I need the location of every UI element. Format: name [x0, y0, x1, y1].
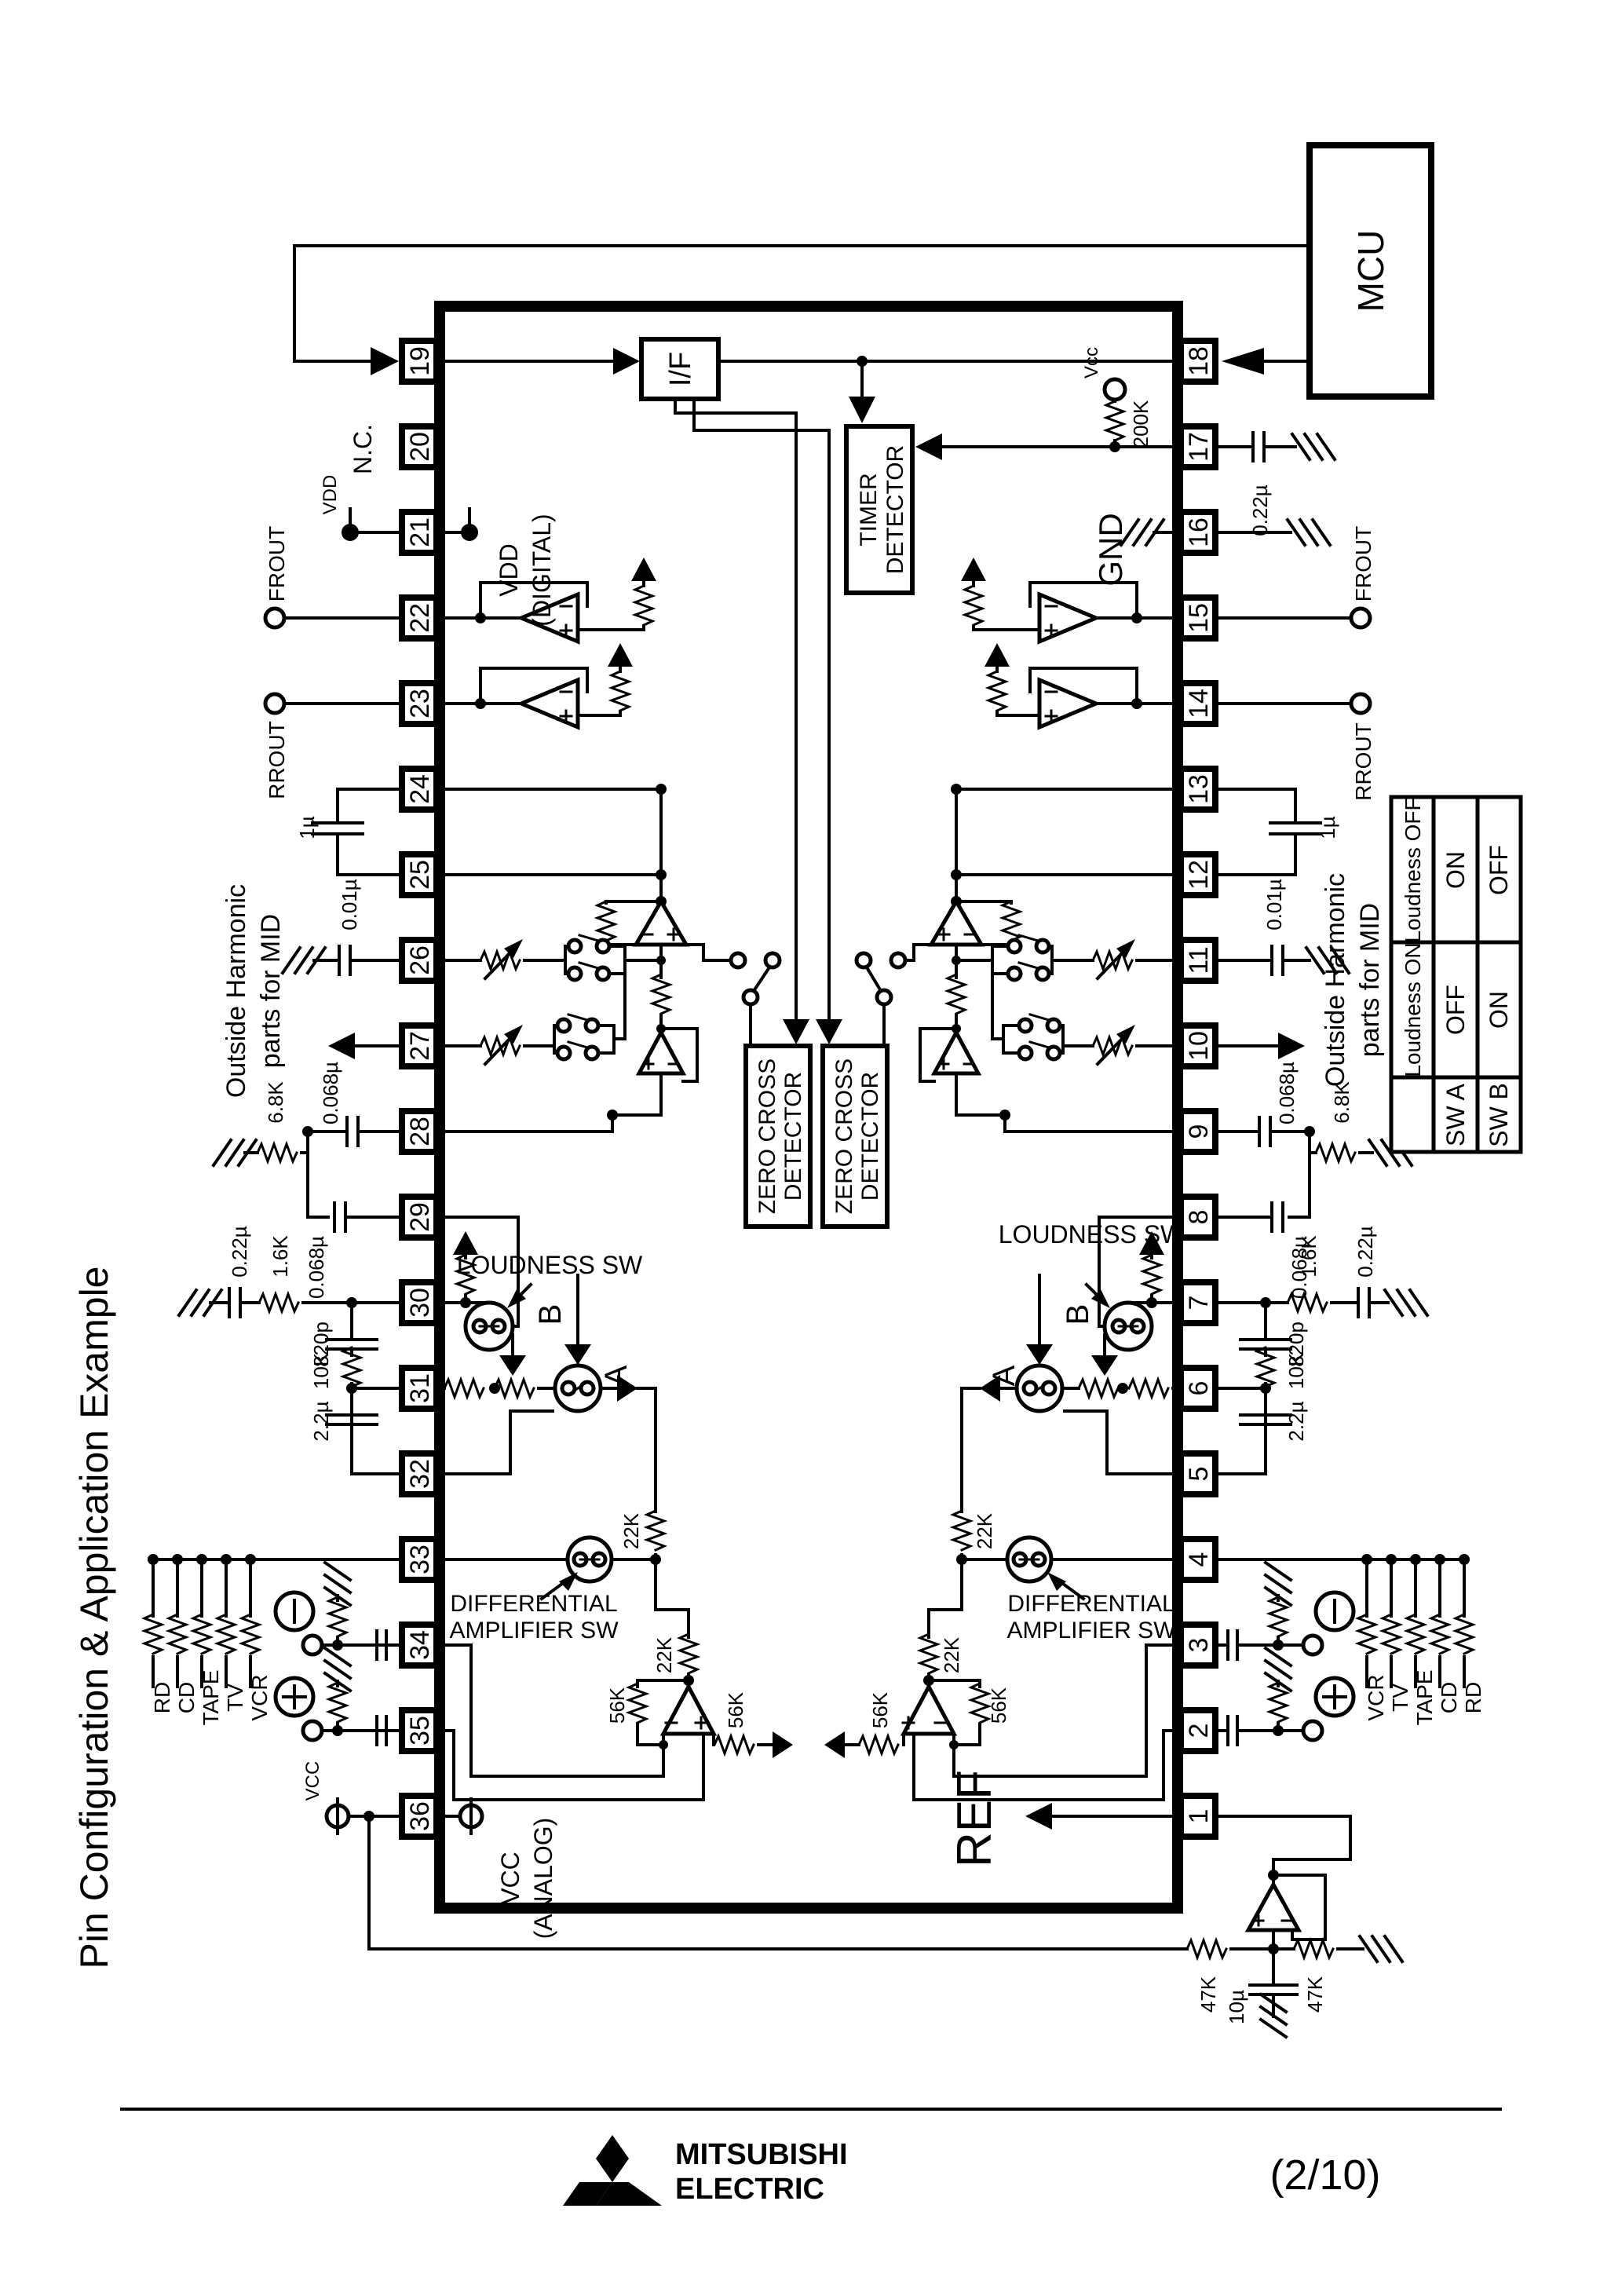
pin-15-number: 15: [1184, 603, 1214, 633]
pin-24: 24: [399, 766, 440, 813]
pin-26-number: 26: [405, 945, 435, 975]
loudness-b-label-right: B: [1061, 1304, 1095, 1325]
pin-10: 10: [1178, 1022, 1218, 1069]
r22k-in-right: 22K: [940, 1636, 963, 1673]
source-resistors-left: RD CD TAPE TV VCR: [144, 1559, 272, 1726]
c068a-left-label: 0.068µ: [319, 1062, 342, 1124]
table-swb-on-state: ON: [1485, 991, 1513, 1029]
pin-33: 33: [399, 1536, 440, 1583]
pin-30: 30: [399, 1279, 440, 1326]
pin-23: 23: [399, 680, 440, 727]
pin-12: 12: [1178, 851, 1218, 898]
mitsubishi-logo-icon: [563, 2135, 662, 2206]
page-title: Pin Configuration & Application Example: [72, 1267, 116, 1969]
pin-7-number: 7: [1184, 1296, 1214, 1311]
diff-label-left-2: AMPLIFIER SW: [449, 1618, 619, 1643]
diff-amp-left: 22K 22K 56K 56K DIFFERENTIAL AMPLIFIER S…: [440, 1511, 793, 1800]
r22k-series-left: 22K: [619, 1512, 643, 1549]
pin-27: 27: [399, 1022, 440, 1069]
pin-25: 25: [399, 851, 440, 898]
pin-28: 28: [399, 1108, 440, 1155]
brand-line-2: ELECTRIC: [675, 2173, 824, 2206]
pin-36-number: 36: [405, 1801, 435, 1831]
pin-4-number: 4: [1184, 1552, 1214, 1567]
r56k-out-right: 56K: [868, 1691, 892, 1728]
vcc-int-label-1: VCC: [496, 1852, 524, 1905]
timer-label-2: DETECTOR: [882, 445, 908, 574]
zcd2-label-1: ZERO CROSS: [831, 1058, 857, 1214]
left-channel-internals: B A LOUDNESS SW: [440, 558, 697, 1512]
loudness-sw-label-left: LOUDNESS SW: [457, 1251, 643, 1279]
if-label: I/F: [664, 352, 697, 386]
c1u-right-label: 1µ: [1316, 816, 1339, 839]
c10u-label: 10µ: [1225, 1990, 1248, 2024]
harmonic-left-2: parts for MID: [256, 914, 286, 1068]
src-tv: TV: [223, 1684, 247, 1712]
pin-19-number: 19: [405, 346, 435, 376]
pin-22-number: 22: [405, 603, 435, 633]
pin-20: 20: [399, 423, 440, 470]
vdd-int-label-2: (DIGITAL): [528, 514, 556, 626]
pin-17-number: 17: [1184, 432, 1214, 462]
zero-cross-detector-2: ZERO CROSS DETECTOR: [823, 1046, 887, 1227]
pin-35: 35: [399, 1707, 440, 1754]
brand-line-1: MITSUBISHI: [675, 2138, 848, 2171]
ref-wiring: REF: [948, 1770, 1178, 1867]
pin-15: 15: [1178, 594, 1218, 642]
pin-9-number: 9: [1184, 1124, 1214, 1139]
table-sw-a: SW A: [1441, 1083, 1470, 1146]
r47k-1-label: 47K: [1196, 1976, 1220, 2013]
rrout-right-label: RROUT: [1351, 722, 1375, 801]
pin-8: 8: [1178, 1194, 1218, 1241]
pin-11-number: 11: [1184, 946, 1214, 974]
datasheet-page: Pin Configuration & Application Example …: [0, 0, 1622, 2296]
pin-24-number: 24: [405, 774, 435, 804]
gnd-label: GND: [1092, 513, 1129, 586]
pin-17: 17: [1178, 423, 1218, 470]
left-externals: N.C. VDD VDD (DIGITAL) FROUT RROUT 1µ 0.…: [144, 424, 1187, 1949]
pin-36: 36: [399, 1793, 440, 1840]
src-cd: CD: [174, 1682, 199, 1713]
harmonic-right-1: Outside Harmonic: [1321, 873, 1350, 1087]
frout-left-label: FROUT: [265, 526, 289, 601]
c022-left-label: 0.22µ: [228, 1226, 251, 1278]
vdd-ext-label: VDD: [320, 475, 341, 515]
pin-25-number: 25: [405, 860, 435, 890]
c1u-left-label: 1µ: [295, 816, 319, 839]
pin-31: 31: [399, 1365, 440, 1412]
table-swb-off-state: OFF: [1485, 845, 1513, 895]
diff-label-right-1: DIFFERENTIAL: [1007, 1591, 1174, 1617]
pin-18-number: 18: [1184, 346, 1214, 376]
pin-19: 19: [399, 338, 440, 385]
pin-2: 2: [1178, 1707, 1218, 1754]
r47k-2-label: 47K: [1303, 1976, 1327, 2013]
table-sw-b: SW B: [1485, 1083, 1513, 1147]
pin-35-number: 35: [405, 1716, 435, 1746]
vcc-int-label-2: (ANALOG): [529, 1818, 557, 1940]
pin-1: 1: [1178, 1793, 1218, 1840]
mcu-block: MCU: [1310, 145, 1431, 397]
pin-28-number: 28: [405, 1117, 435, 1146]
table-loudness-on: Loudness ON: [1401, 942, 1425, 1077]
pins-left: 19 20 21 22 23 24 25 26 27 28 29 30 31 3…: [399, 338, 440, 1840]
r10k-right-label: 10K: [1284, 1352, 1308, 1389]
pin-20-number: 20: [405, 432, 435, 462]
frout-right-label: FROUT: [1351, 526, 1375, 601]
r16k-right-label: 1.6K: [1297, 1235, 1321, 1278]
pin-29-number: 29: [405, 1202, 435, 1232]
loudness-sw-label-right: LOUDNESS SW: [999, 1220, 1185, 1249]
src-tape-r: TAPE: [1412, 1669, 1437, 1725]
mcu-label: MCU: [1350, 230, 1391, 313]
src-rd: RD: [150, 1682, 174, 1713]
r56k-out-left: 56K: [724, 1691, 747, 1728]
table-loudness-off: Loudness OFF: [1401, 797, 1425, 942]
diff-label-left-1: DIFFERENTIAL: [450, 1591, 617, 1617]
diff-label-right-2: AMPLIFIER SW: [1006, 1618, 1176, 1643]
src-vcr-r: VCR: [1364, 1674, 1388, 1720]
pin-10-number: 10: [1184, 1031, 1214, 1061]
pin-29: 29: [399, 1194, 440, 1241]
r22k-series-right: 22K: [973, 1512, 996, 1549]
pin-31-number: 31: [405, 1373, 435, 1403]
zcd2-label-2: DETECTOR: [857, 1072, 883, 1201]
vcc-pullup-label: Vcc: [1081, 347, 1102, 378]
harmonic-left-1: Outside Harmonic: [221, 884, 251, 1098]
pin-21: 21: [399, 509, 440, 556]
timer-detector-wiring: Vcc 200K: [915, 347, 1178, 460]
schematic: Pin Configuration & Application Example …: [0, 0, 1622, 2296]
pin-34-number: 34: [405, 1630, 435, 1660]
ref-label: REF: [948, 1770, 1002, 1867]
pin-6: 6: [1178, 1365, 1218, 1412]
r68k-right-label: 6.8K: [1330, 1081, 1353, 1124]
zcd1-label-1: ZERO CROSS: [754, 1058, 780, 1214]
r56k-fb-left: 56K: [605, 1687, 629, 1724]
c22u-right-label: 2.2µ: [1284, 1401, 1308, 1441]
source-resistors-right: VCR TV TAPE CD RD: [1358, 1559, 1485, 1726]
pin-6-number: 6: [1184, 1381, 1214, 1396]
pin-16-number: 16: [1184, 517, 1214, 547]
pin-18: 18: [1178, 338, 1218, 385]
loudness-b-label-left: B: [533, 1304, 568, 1325]
diff-amp-right: 22K 22K 56K 56K DIFFERENTIAL AMPLIFIER S…: [824, 1511, 1178, 1800]
src-tv-r: TV: [1388, 1684, 1412, 1712]
footer: MITSUBISHI ELECTRIC (2/10): [122, 2109, 1500, 2206]
pin-12-number: 12: [1184, 860, 1214, 890]
r56k-fb-right: 56K: [987, 1687, 1010, 1724]
if-block: I/F: [641, 339, 718, 399]
zero-cross-wiring: [686, 945, 931, 1046]
r68k-left-label: 6.8K: [264, 1081, 287, 1124]
src-tape: TAPE: [199, 1669, 223, 1725]
r200k-label: 200K: [1129, 400, 1153, 448]
src-rd-r: RD: [1461, 1682, 1485, 1713]
timer-detector-block: TIMER DETECTOR: [846, 426, 912, 593]
pin-33-number: 33: [405, 1545, 435, 1574]
pin-5: 5: [1178, 1450, 1218, 1497]
src-vcr: VCR: [247, 1674, 272, 1720]
nc-label: N.C.: [349, 424, 377, 474]
pin-13-number: 13: [1184, 774, 1214, 804]
pin-4: 4: [1178, 1536, 1218, 1583]
rrout-left-label: RROUT: [265, 721, 289, 799]
pin-8-number: 8: [1184, 1210, 1214, 1225]
pin-11: 11: [1178, 937, 1218, 984]
pin-14: 14: [1178, 680, 1218, 727]
harmonic-right-2: parts for MID: [1355, 903, 1385, 1057]
c001-left-label: 0.01µ: [338, 879, 361, 930]
c22u-left-label: 2.2µ: [309, 1401, 333, 1441]
zero-cross-detector-1: ZERO CROSS DETECTOR: [746, 1046, 810, 1227]
right-channel-internals: B A LOUDNESS SW: [920, 558, 1185, 1512]
timer-label-1: TIMER: [856, 473, 882, 546]
pin-27-number: 27: [405, 1031, 435, 1061]
pins-right: 18 17 16 15 14 13 12 11 10 9 8 7 6 5 4 3…: [1178, 338, 1218, 1840]
c001-right-label: 0.01µ: [1262, 879, 1286, 930]
c068b-left-label: 0.068µ: [305, 1236, 328, 1299]
pin-1-number: 1: [1184, 1809, 1214, 1824]
loudness-table: Loudness OFF ON OFF Loudness ON OFF ON S…: [1391, 797, 1521, 1152]
vdd-int-label-1: VDD: [495, 543, 523, 597]
table-swa-on-state: OFF: [1441, 985, 1470, 1035]
pin-7: 7: [1178, 1279, 1218, 1326]
pin-13: 13: [1178, 766, 1218, 813]
src-cd-r: CD: [1437, 1682, 1461, 1713]
pin-26: 26: [399, 937, 440, 984]
pin-5-number: 5: [1184, 1467, 1214, 1482]
r16k-left-label: 1.6K: [269, 1235, 292, 1278]
c022-pin17-label: 0.22µ: [1248, 484, 1272, 536]
pin-32: 32: [399, 1450, 440, 1497]
pin-16: 16: [1178, 509, 1218, 556]
pin-21-number: 21: [405, 517, 435, 547]
vcc-ext-label: VCC: [302, 1761, 323, 1801]
pin-3-number: 3: [1184, 1638, 1214, 1653]
c068a-right-label: 0.068µ: [1275, 1062, 1299, 1124]
pin-14-number: 14: [1184, 689, 1214, 718]
pin-9: 9: [1178, 1108, 1218, 1155]
r10k-left-label: 10K: [309, 1352, 333, 1389]
zcd1-label-2: DETECTOR: [780, 1072, 806, 1201]
pin-30-number: 30: [405, 1288, 435, 1318]
pin-23-number: 23: [405, 689, 435, 718]
pin-3: 3: [1178, 1621, 1218, 1669]
table-swa-off-state: ON: [1441, 851, 1470, 889]
pin-32-number: 32: [405, 1459, 435, 1489]
pin-34: 34: [399, 1621, 440, 1669]
pin-22: 22: [399, 594, 440, 642]
pin-2-number: 2: [1184, 1724, 1214, 1738]
r22k-in-left: 22K: [652, 1636, 676, 1673]
c022-right-label: 0.22µ: [1353, 1226, 1377, 1278]
page-number: (2/10): [1269, 2152, 1380, 2199]
